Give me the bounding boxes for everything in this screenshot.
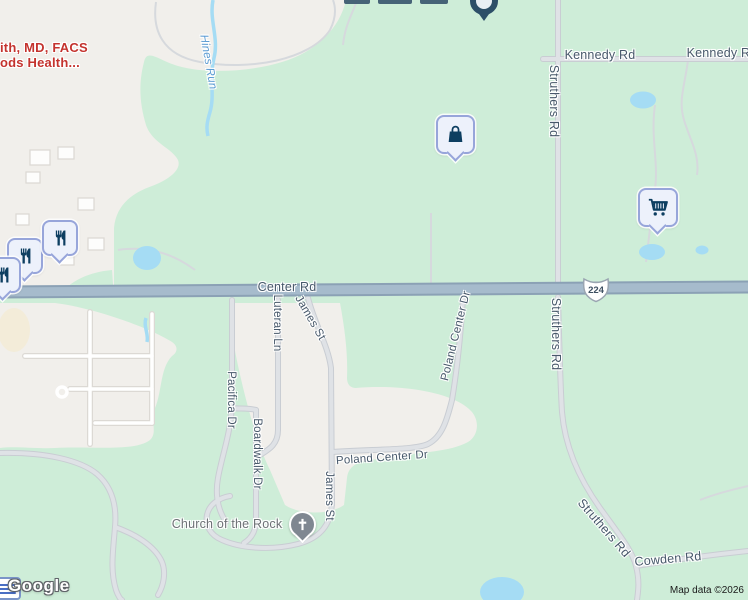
road-label-center-rd: Center Rd: [258, 280, 317, 294]
church-cross-icon: [295, 517, 310, 532]
map-base-layer: 224: [0, 0, 748, 600]
church-pin[interactable]: [289, 511, 316, 538]
clipped-poi-text: [420, 0, 448, 4]
road-label-kennedy-rd-2: Kennedy Rd: [687, 46, 748, 60]
google-logo[interactable]: Google: [8, 576, 70, 596]
shopping-bag-icon: [445, 124, 466, 145]
road-label-pacifica-dr: Pacifica Dr: [225, 371, 237, 429]
generic-pin-tail: [479, 14, 489, 21]
poi-label-business-line2: ods Health...: [0, 55, 88, 70]
poi-label-business[interactable]: ith, MD, FACS ods Health...: [0, 40, 88, 70]
clipped-poi-text: [344, 0, 370, 4]
map-viewport[interactable]: 224 Kennedy Rd Kennedy Rd Struthers Rd S…: [0, 0, 748, 600]
grocery-cart-marker[interactable]: [638, 188, 678, 227]
poi-label-church-of-the-rock[interactable]: Church of the Rock: [172, 517, 283, 531]
road-label-struthers-rd-mid: Struthers Rd: [549, 298, 563, 371]
shopping-bag-marker[interactable]: [436, 115, 475, 154]
road-label-james-st-lower: James St: [323, 471, 335, 521]
restaurant-icon: [50, 228, 70, 248]
road-label-luteran-ln: Luteran Ln: [271, 295, 283, 352]
map-attribution: Map data ©2026: [670, 585, 744, 596]
shopping-cart-icon: [647, 197, 669, 219]
clipped-poi-text: [378, 0, 412, 4]
poi-label-business-line1: ith, MD, FACS: [0, 40, 88, 55]
road-label-boardwalk-dr: Boardwalk Dr: [251, 418, 263, 489]
restaurant-icon: [0, 265, 13, 285]
road-label-struthers-rd-north: Struthers Rd: [547, 65, 561, 138]
road-label-kennedy-rd-1: Kennedy Rd: [565, 48, 636, 62]
restaurant-marker[interactable]: [42, 220, 78, 256]
restaurant-marker[interactable]: [0, 257, 21, 293]
center-rd-fill: [0, 287, 748, 292]
us-224-shield-label: 224: [588, 285, 605, 296]
